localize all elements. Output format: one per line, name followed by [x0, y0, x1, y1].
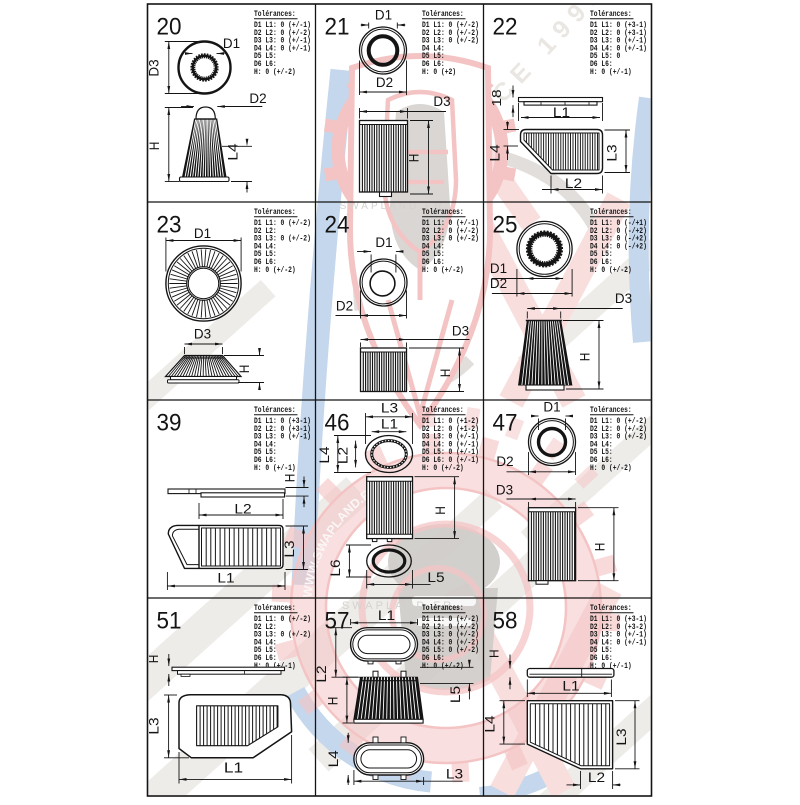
svg-text:H: 0 (+/-2): H: 0 (+/-2)	[590, 265, 632, 275]
svg-text:H: 0 (+/-2): H: 0 (+/-2)	[422, 265, 464, 275]
svg-text:20: 20	[157, 14, 182, 41]
svg-text:D2: D2	[496, 454, 513, 469]
svg-text:Tolérances:: Tolérances:	[254, 405, 296, 415]
svg-text:57: 57	[325, 608, 350, 635]
svg-text:L1: L1	[562, 679, 579, 694]
svg-text:L1: L1	[224, 760, 243, 777]
svg-text:L3: L3	[282, 540, 297, 558]
svg-text:Tolérances:: Tolérances:	[422, 603, 464, 613]
svg-text:D3: D3	[433, 94, 451, 109]
svg-text:L1: L1	[553, 105, 570, 120]
svg-text:D3: D3	[194, 327, 212, 342]
svg-text:L2: L2	[336, 447, 351, 464]
svg-text:H: H	[237, 365, 252, 374]
svg-text:H: H	[326, 697, 341, 706]
svg-text:L3: L3	[446, 767, 464, 782]
svg-text:L4: L4	[226, 143, 241, 161]
svg-text:H: H	[593, 543, 608, 552]
svg-text:H: 0 (+/-2): H: 0 (+/-2)	[254, 265, 296, 275]
svg-text:Tolérances:: Tolérances:	[590, 603, 632, 613]
svg-text:D2: D2	[336, 299, 353, 314]
svg-text:H: 0 (+/-2): H: 0 (+/-2)	[590, 463, 632, 473]
svg-text:L2: L2	[314, 665, 329, 682]
svg-text:L3: L3	[605, 144, 620, 162]
svg-text:L4: L4	[488, 144, 503, 162]
svg-text:Tolérances:: Tolérances:	[590, 207, 632, 217]
svg-text:Tolérances:: Tolérances:	[590, 9, 632, 19]
svg-text:Tolérances:: Tolérances:	[422, 9, 464, 19]
svg-text:L5: L5	[427, 570, 445, 585]
svg-text:D1: D1	[490, 261, 507, 276]
svg-text:D1: D1	[194, 226, 211, 241]
svg-text:H: H	[433, 506, 448, 515]
svg-text:D1: D1	[223, 36, 240, 51]
svg-text:51: 51	[157, 608, 182, 635]
svg-text:H: H	[147, 142, 162, 151]
svg-text:24: 24	[325, 212, 350, 239]
svg-text:D2: D2	[490, 276, 507, 291]
svg-text:H: H	[578, 353, 593, 362]
svg-text:Tolérances:: Tolérances:	[254, 603, 296, 613]
svg-text:D3: D3	[496, 483, 514, 498]
svg-text:L6: L6	[328, 559, 343, 577]
svg-text:Tolérances:: Tolérances:	[422, 207, 464, 217]
svg-text:H: H	[438, 369, 453, 378]
svg-text:L3: L3	[381, 401, 399, 416]
svg-text:H: 0 (+/-1): H: 0 (+/-1)	[254, 463, 296, 473]
svg-text:25: 25	[493, 212, 518, 239]
svg-text:Tolérances:: Tolérances:	[254, 207, 296, 217]
svg-text:L2: L2	[234, 502, 251, 517]
svg-text:H: 0 (+/-2): H: 0 (+/-2)	[422, 661, 464, 671]
svg-text:D3: D3	[452, 324, 470, 339]
svg-text:L1: L1	[378, 608, 395, 623]
svg-text:L1: L1	[381, 416, 398, 431]
svg-text:21: 21	[325, 14, 350, 41]
svg-text:Tolérances:: Tolérances:	[422, 405, 464, 415]
svg-text:Tolérances:: Tolérances:	[254, 9, 296, 19]
svg-text:D1: D1	[543, 400, 560, 415]
svg-text:L2: L2	[565, 176, 582, 191]
svg-text:H: 0 (+2): H: 0 (+2)	[422, 67, 456, 77]
svg-text:H: 0 (+/-2): H: 0 (+/-2)	[254, 67, 296, 77]
svg-text:58: 58	[493, 608, 518, 635]
svg-text:Tolérances:: Tolérances:	[590, 405, 632, 415]
svg-text:L1: L1	[217, 571, 234, 586]
svg-text:46: 46	[325, 410, 350, 437]
svg-text:D2: D2	[376, 75, 393, 90]
svg-text:18: 18	[489, 89, 504, 106]
svg-text:L4: L4	[483, 715, 498, 733]
svg-text:H: 0 (+/-2): H: 0 (+/-2)	[422, 463, 464, 473]
svg-text:D3: D3	[615, 291, 633, 306]
svg-text:L2: L2	[588, 770, 605, 785]
svg-text:D2: D2	[249, 91, 266, 106]
svg-text:D1: D1	[375, 235, 392, 250]
svg-text:H: H	[407, 154, 422, 163]
svg-text:L3: L3	[614, 728, 629, 746]
svg-text:L5: L5	[448, 685, 463, 703]
svg-text:L4: L4	[326, 750, 341, 768]
svg-text:L3: L3	[147, 717, 162, 735]
svg-text:23: 23	[157, 212, 182, 239]
svg-text:H: 0 (+/-1): H: 0 (+/-1)	[590, 67, 632, 77]
svg-text:D1: D1	[375, 8, 392, 23]
svg-text:39: 39	[157, 410, 182, 437]
svg-text:47: 47	[493, 410, 518, 437]
svg-text:22: 22	[493, 14, 518, 41]
svg-text:L4: L4	[317, 446, 332, 464]
svg-text:H: H	[487, 649, 502, 658]
svg-text:D3: D3	[147, 59, 162, 77]
svg-text:H: H	[283, 474, 298, 483]
